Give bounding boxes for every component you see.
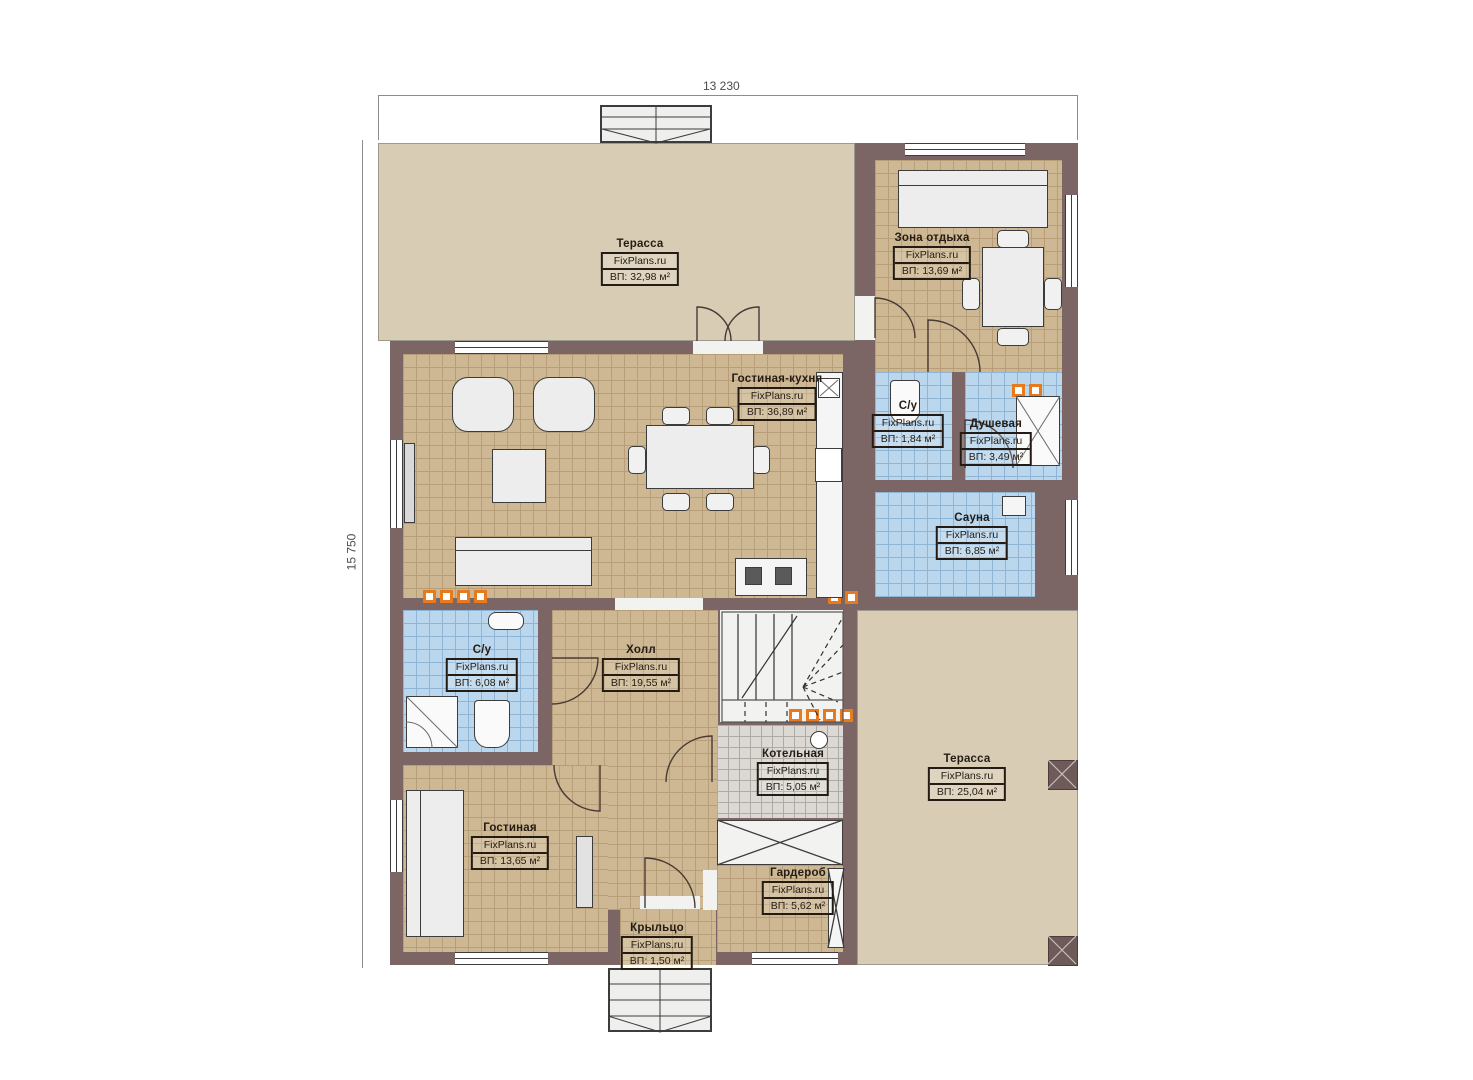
dimension-ext-left	[378, 95, 379, 140]
cabinet	[576, 836, 593, 908]
sofa-bed	[406, 790, 464, 937]
dimension-left-label: 15 750	[344, 534, 358, 571]
room-area: ВП: 13,69 м²	[895, 264, 969, 278]
chair	[1044, 278, 1062, 310]
brand-text: FixPlans.ru	[895, 248, 969, 264]
door-opening-terrace	[693, 341, 763, 354]
chair	[962, 278, 980, 310]
room-area: ВП: 6,08 м²	[448, 676, 516, 690]
vent-icon	[440, 590, 453, 603]
room-name: Сауна	[936, 512, 1008, 524]
vent-icon	[474, 590, 487, 603]
closet-box	[717, 820, 843, 865]
room-name: Зона отдыха	[893, 232, 971, 244]
sofa	[455, 537, 592, 586]
vent-blocks	[789, 709, 853, 722]
dining-table	[646, 425, 754, 489]
room-label-garderob: Гардероб FixPlans.ruВП: 5,62 м²	[762, 867, 834, 915]
chair	[997, 328, 1029, 346]
toilet	[474, 700, 510, 748]
brand-text: FixPlans.ru	[740, 389, 814, 405]
vent-icon	[806, 709, 819, 722]
floor-stairs	[720, 610, 843, 722]
window	[390, 800, 403, 872]
brand-text: FixPlans.ru	[604, 660, 678, 676]
room-area: ВП: 1,50 м²	[623, 954, 691, 968]
room-area: ВП: 1,84 м²	[874, 432, 942, 446]
table	[982, 247, 1044, 327]
room-name: Крыльцо	[621, 922, 693, 934]
room-label-sauna: Сауна FixPlans.ruВП: 6,85 м²	[936, 512, 1008, 560]
room-area: ВП: 19,55 м²	[604, 676, 678, 690]
room-name: С/у	[446, 644, 518, 656]
dining-chair	[752, 446, 770, 474]
door-opening-entrance	[640, 896, 700, 909]
dining-chair	[706, 493, 734, 511]
brand-text: FixPlans.ru	[448, 660, 516, 676]
room-label-krylco: Крыльцо FixPlans.ruВП: 1,50 м²	[621, 922, 693, 970]
room-name: Душевая	[960, 418, 1032, 430]
room-area: ВП: 25,04 м²	[930, 785, 1004, 799]
vent-icon	[823, 709, 836, 722]
sink	[488, 612, 524, 630]
dining-chair	[662, 407, 690, 425]
room-area: ВП: 5,05 м²	[759, 780, 827, 794]
brand-text: FixPlans.ru	[874, 416, 942, 432]
brand-text: FixPlans.ru	[473, 838, 547, 854]
window	[1065, 195, 1078, 287]
vent-icon	[423, 590, 436, 603]
terrace-post	[1048, 760, 1078, 790]
steps-top	[600, 105, 712, 143]
room-label-zona-otdyha: Зона отдыха FixPlans.ruВП: 13,69 м²	[893, 232, 971, 280]
dining-chair	[628, 446, 646, 474]
brand-text: FixPlans.ru	[759, 764, 827, 780]
vent-icon	[845, 591, 858, 604]
brand-text: FixPlans.ru	[962, 434, 1030, 450]
window	[1065, 500, 1078, 575]
room-label-su-left: С/у FixPlans.ruВП: 6,08 м²	[446, 644, 518, 692]
room-area: ВП: 36,89 м²	[740, 405, 814, 419]
chair	[997, 230, 1029, 248]
room-label-gostinaya: Гостиная FixPlans.ruВП: 13,65 м²	[471, 822, 549, 870]
room-label-dushevaya: Душевая FixPlans.ruВП: 3,49 м²	[960, 418, 1032, 466]
terrace-post	[1048, 936, 1078, 966]
coffee-table	[492, 449, 546, 503]
boiler	[810, 731, 828, 749]
dimension-top-label: 13 230	[703, 79, 740, 93]
armchair	[533, 377, 595, 432]
tv-stand	[404, 443, 415, 523]
steps-bottom	[608, 968, 712, 1032]
vent-icon	[840, 709, 853, 722]
room-name: Гостиная-кухня	[732, 373, 823, 385]
vent-icon	[789, 709, 802, 722]
room-name: С/у	[872, 400, 944, 412]
vent-icon	[457, 590, 470, 603]
armchair	[452, 377, 514, 432]
brand-text: FixPlans.ru	[938, 528, 1006, 544]
brand-text: FixPlans.ru	[603, 254, 677, 270]
brand-text: FixPlans.ru	[930, 769, 1004, 785]
kitchen-stove	[815, 448, 842, 482]
room-name: Холл	[602, 644, 680, 656]
floor-plan: 13 230 15 750	[0, 0, 1473, 1080]
oven-burner	[775, 567, 792, 585]
dimension-ext-right	[1077, 95, 1078, 140]
dimension-line-top	[378, 95, 1078, 96]
room-area: ВП: 32,98 м²	[603, 270, 677, 284]
window	[752, 952, 838, 965]
room-area: ВП: 13,65 м²	[473, 854, 547, 868]
window	[390, 440, 403, 528]
brand-text: FixPlans.ru	[764, 883, 832, 899]
room-name: Терасса	[601, 238, 679, 250]
room-area: ВП: 3,49 м²	[962, 450, 1030, 464]
room-name: Гардероб	[762, 867, 834, 879]
room-label-terrace-right: Терасса FixPlans.ruВП: 25,04 м²	[928, 753, 1006, 801]
room-label-holl: Холл FixPlans.ruВП: 19,55 м²	[602, 644, 680, 692]
window	[455, 341, 548, 354]
room-name: Гостиная	[471, 822, 549, 834]
dining-chair	[706, 407, 734, 425]
oven-burner	[745, 567, 762, 585]
door-opening-wing	[855, 296, 875, 340]
dining-chair	[662, 493, 690, 511]
dimension-line-left	[362, 140, 363, 968]
window	[905, 143, 1025, 156]
room-name: Терасса	[928, 753, 1006, 765]
door-opening-garderob	[703, 870, 717, 910]
sofa	[898, 170, 1048, 228]
room-area: ВП: 6,85 м²	[938, 544, 1006, 558]
room-label-su-small: С/у FixPlans.ruВП: 1,84 м²	[872, 400, 944, 448]
room-label-gostinaya-kuhnya: Гостиная-кухня FixPlans.ruВП: 36,89 м²	[732, 373, 823, 421]
brand-text: FixPlans.ru	[623, 938, 691, 954]
window	[455, 952, 548, 965]
room-area: ВП: 5,62 м²	[764, 899, 832, 913]
room-label-kotelnaya: Котельная FixPlans.ruВП: 5,05 м²	[757, 748, 829, 796]
shower-tray	[406, 696, 458, 748]
vent-blocks	[423, 590, 487, 603]
room-name: Котельная	[757, 748, 829, 760]
opening-living-hall	[615, 598, 703, 610]
room-label-terrace-top: Терасса FixPlans.ruВП: 32,98 м²	[601, 238, 679, 286]
